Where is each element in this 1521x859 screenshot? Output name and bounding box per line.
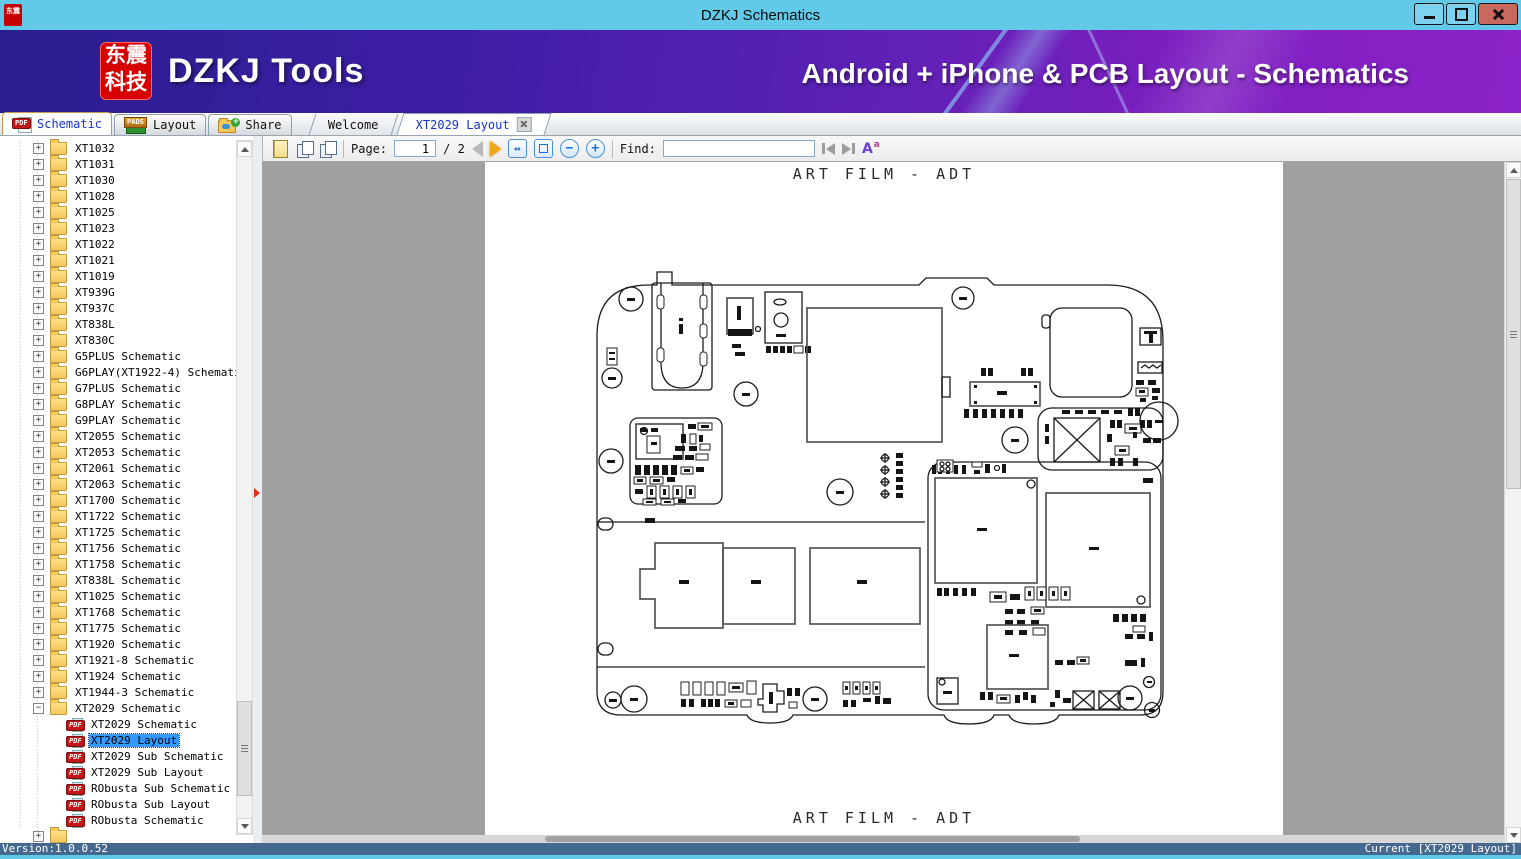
expander-icon[interactable] (33, 159, 44, 170)
page-total: / 2 (443, 142, 465, 156)
tree-item-folder[interactable]: G6PLAY(XT1922-4) Schematic (0, 364, 236, 380)
pdf-page: ART FILM - ADT ART FILM - ADT (485, 162, 1283, 835)
folder-icon (50, 334, 67, 347)
tab-layout-label: Layout (153, 118, 196, 132)
tree-item-folder[interactable]: XT1025 Schematic (0, 588, 236, 604)
pcb-drawing (485, 162, 1283, 835)
folder-icon (50, 542, 67, 555)
tree-item-pdf[interactable]: PDFXT2029 Sub Layout (0, 764, 236, 780)
folder-icon (50, 702, 67, 715)
expander-icon[interactable] (33, 511, 44, 522)
expander-icon[interactable] (33, 671, 44, 682)
tree-item-pdf[interactable]: PDFRObusta Sub Schematic (0, 780, 236, 796)
expander-icon[interactable] (33, 415, 44, 426)
sim-connector (607, 283, 712, 390)
logo-line1: 东震 (100, 42, 152, 69)
tree-item-folder[interactable]: XT1924 Schematic (0, 668, 236, 684)
tree-item-pdf-selected[interactable]: PDFXT2029 Layout (0, 732, 236, 748)
expander-icon[interactable] (33, 463, 44, 474)
close-button[interactable] (1478, 3, 1518, 25)
folder-icon (50, 830, 67, 843)
tree-item-folder[interactable]: XT1019 (0, 268, 236, 284)
folder-icon (50, 382, 67, 395)
find-previous-button[interactable] (822, 143, 835, 155)
folder-icon (50, 462, 67, 475)
folder-icon (50, 686, 67, 699)
tree-item-folder[interactable]: XT1032 (0, 140, 236, 156)
folder-icon (50, 158, 67, 171)
pdf-icon: PDF (66, 814, 83, 827)
window-title: DZKJ Schematics (0, 0, 1521, 30)
app-window: 东震 DZKJ Schematics 东震 科技 DZKJ Tools Andr… (0, 0, 1521, 859)
close-icon (1492, 8, 1504, 20)
expander-icon[interactable] (33, 239, 44, 250)
folder-icon (50, 238, 67, 251)
horizontal-scrollbar[interactable] (262, 835, 1504, 843)
folder-icon (50, 142, 67, 155)
tree-item-folder[interactable]: XT2061 Schematic (0, 460, 236, 476)
expander-icon[interactable] (33, 543, 44, 554)
tree-item-folder-partial[interactable] (0, 828, 236, 843)
tree-item-folder[interactable]: XT1944-3 Schematic (0, 684, 236, 700)
window-controls (1414, 3, 1518, 25)
bottom-connector-row (681, 681, 891, 712)
expander-icon[interactable] (33, 639, 44, 650)
collapse-icon[interactable] (33, 703, 44, 714)
expander-icon[interactable] (33, 223, 44, 234)
tree-item-pdf[interactable]: PDFRObusta Sub Layout (0, 796, 236, 812)
expander-icon[interactable] (33, 287, 44, 298)
camera-cross-region (1045, 408, 1161, 466)
expander-icon[interactable] (33, 143, 44, 154)
tree-item-folder[interactable]: XT1030 (0, 172, 236, 188)
page-number-input[interactable] (394, 140, 436, 157)
separator (343, 140, 344, 158)
banner: 东震 科技 DZKJ Tools Android + iPhone & PCB … (0, 30, 1521, 113)
camera-socket (1042, 308, 1132, 397)
grip-icon (1510, 331, 1517, 338)
banner-tagline: Android + iPhone & PCB Layout - Schemati… (801, 58, 1409, 90)
tree-item-folder[interactable]: XT838L (0, 316, 236, 332)
folder-icon (50, 670, 67, 683)
tree-item-folder[interactable]: XT1021 (0, 252, 236, 268)
audio-module (630, 418, 722, 505)
page-title-top: ART FILM - ADT (485, 165, 1283, 183)
expander-icon[interactable] (33, 175, 44, 186)
expander-icon[interactable] (33, 319, 44, 330)
pdf-icon: PDF (66, 718, 83, 731)
page-label: Page: (351, 142, 387, 156)
zoom-out-button[interactable]: − (560, 139, 579, 158)
tree-item-folder[interactable]: XT830C (0, 332, 236, 348)
current-document-text: Current [XT2029 Layout] (1365, 843, 1517, 855)
scroll-down-button[interactable] (237, 818, 252, 834)
folder-icon (50, 430, 67, 443)
scrollbar-thumb[interactable] (237, 701, 252, 796)
tree-item-folder[interactable]: G8PLAY Schematic (0, 396, 236, 412)
tab-layout[interactable]: PADS Layout (114, 114, 206, 135)
tree-item-pdf[interactable]: PDFRObusta Schematic (0, 812, 236, 828)
pdf-icon: PDF (66, 798, 83, 811)
expander-icon[interactable] (33, 527, 44, 538)
tree-item-folder[interactable]: XT937C (0, 300, 236, 316)
expander-icon[interactable] (33, 351, 44, 362)
folder-icon (50, 206, 67, 219)
match-case-icon[interactable] (862, 142, 873, 156)
minimize-icon (1424, 16, 1435, 19)
arrow-down-icon (241, 824, 249, 829)
folder-icon (50, 270, 67, 283)
tree-item-folder[interactable]: XT1758 Schematic (0, 556, 236, 572)
version-text: Version:1.0.0.52 (2, 843, 108, 855)
folder-icon (50, 494, 67, 507)
folder-icon (50, 302, 67, 315)
tree-item-folder[interactable]: XT2055 Schematic (0, 428, 236, 444)
fit-page-button[interactable] (534, 139, 553, 158)
receiver (756, 292, 812, 353)
tree-item-pdf[interactable]: PDFXT2029 Sub Schematic (0, 748, 236, 764)
next-page-button[interactable] (490, 141, 501, 157)
rotate-left-icon[interactable] (297, 141, 313, 157)
expander-icon[interactable] (33, 575, 44, 586)
share-icon: + (218, 118, 240, 133)
pdf-icon: PDF (12, 116, 32, 132)
folder-icon (50, 638, 67, 651)
battery-connector (727, 298, 753, 356)
pads-icon: PADS (124, 117, 148, 134)
expander-icon[interactable] (33, 367, 44, 378)
expander-icon[interactable] (33, 255, 44, 266)
tab-schematic-label: Schematic (37, 117, 102, 131)
scrollbar-thumb[interactable] (1506, 179, 1521, 489)
previous-page-button[interactable] (472, 141, 483, 157)
folder-icon (50, 574, 67, 587)
folder-icon (50, 190, 67, 203)
lower-left-section (640, 518, 920, 628)
tree-item-folder-expanded[interactable]: XT2029 Schematic (0, 700, 236, 716)
find-next-button[interactable] (842, 143, 855, 155)
tree-item-folder[interactable]: XT1025 (0, 204, 236, 220)
tab-xt2029-label: XT2029 Layout (416, 118, 510, 132)
tree-item-folder[interactable]: XT1022 (0, 236, 236, 252)
expander-icon[interactable] (33, 271, 44, 282)
expander-icon[interactable] (33, 447, 44, 458)
expander-icon[interactable] (33, 335, 44, 346)
expander-icon[interactable] (33, 495, 44, 506)
expander-icon[interactable] (33, 431, 44, 442)
arrow-up-icon (241, 147, 249, 152)
expander-icon[interactable] (33, 831, 44, 842)
tree-item-folder[interactable]: XT1700 Schematic (0, 492, 236, 508)
tree-item-folder[interactable]: XT1920 Schematic (0, 636, 236, 652)
tree-item-folder[interactable]: G5PLUS Schematic (0, 348, 236, 364)
expander-icon[interactable] (33, 399, 44, 410)
minimize-button[interactable] (1414, 3, 1444, 25)
arrow-down-icon (1510, 833, 1518, 838)
folder-icon (50, 366, 67, 379)
folder-icon (50, 606, 67, 619)
pdf-icon: PDF (66, 766, 83, 779)
antenna-pads (880, 453, 903, 499)
tab-share-label: Share (245, 118, 281, 132)
pdf-toolbar: Page: / 2 ↔ − + Find: (262, 136, 1521, 162)
tab-welcome[interactable]: Welcome (308, 114, 397, 135)
arrow-up-icon (1510, 168, 1518, 173)
pdf-icon: PDF (66, 750, 83, 763)
folder-icon (50, 398, 67, 411)
text-select-icon[interactable] (273, 140, 288, 158)
pdf-icon: PDF (66, 782, 83, 795)
folder-icon (50, 222, 67, 235)
find-label: Find: (620, 142, 656, 156)
expander-icon[interactable] (33, 191, 44, 202)
expander-icon[interactable] (33, 207, 44, 218)
titlebar: 东震 DZKJ Schematics (0, 0, 1521, 30)
logo-line2: 科技 (100, 69, 152, 96)
folder-icon (50, 526, 67, 539)
tree-item-folder[interactable]: XT1725 Schematic (0, 524, 236, 540)
folder-icon (50, 446, 67, 459)
tab-share[interactable]: + Share (208, 114, 291, 135)
sidebar: XT1032 XT1031 XT1030 XT1028 XT1025 XT102… (0, 136, 262, 843)
scroll-up-button[interactable] (1506, 162, 1521, 178)
rotate-right-icon[interactable] (320, 141, 336, 157)
folder-icon (50, 318, 67, 331)
tree-item-folder[interactable]: XT1028 (0, 188, 236, 204)
zoom-in-button[interactable]: + (586, 139, 605, 158)
status-bar: Version:1.0.0.52 Current [XT2029 Layout] (0, 843, 1521, 855)
brand-logo: 东震 科技 (100, 42, 152, 100)
tree-item-folder[interactable]: G7PLUS Schematic (0, 380, 236, 396)
tab-schematic[interactable]: PDF Schematic (2, 112, 112, 135)
right-edge-parts (1136, 328, 1162, 402)
expander-icon[interactable] (33, 607, 44, 618)
scroll-up-button[interactable] (237, 141, 252, 157)
scrollbar-thumb[interactable] (545, 836, 1080, 842)
tab-welcome-label: Welcome (328, 118, 379, 132)
fit-page-icon (539, 144, 548, 153)
tree-item-folder[interactable]: XT939G (0, 284, 236, 300)
expander-icon[interactable] (33, 383, 44, 394)
sub-board (932, 460, 1153, 709)
grip-icon (241, 745, 248, 752)
expander-icon[interactable] (33, 591, 44, 602)
folder-icon (50, 654, 67, 667)
product-name: DZKJ Tools (168, 52, 364, 91)
separator (612, 140, 613, 158)
tab-bar: PDF Schematic PADS Layout + Share Welcom… (0, 113, 1521, 136)
tree-item-folder[interactable]: XT1921-8 Schematic (0, 652, 236, 668)
pdf-icon: PDF (66, 734, 83, 747)
tree-item-folder[interactable]: XT1756 Schematic (0, 540, 236, 556)
tree-item-folder[interactable]: XT1722 Schematic (0, 508, 236, 524)
expander-icon[interactable] (33, 655, 44, 666)
tree-item-folder[interactable]: XT2053 Schematic (0, 444, 236, 460)
fit-width-button[interactable]: ↔ (508, 139, 527, 158)
folder-icon (50, 286, 67, 299)
schematic-tree: XT1032 XT1031 XT1030 XT1028 XT1025 XT102… (0, 140, 236, 843)
sidebar-splitter[interactable] (253, 136, 262, 843)
folder-icon (50, 510, 67, 523)
scroll-down-button[interactable] (1506, 827, 1521, 843)
expander-icon[interactable] (33, 623, 44, 634)
expander-icon[interactable] (33, 303, 44, 314)
folder-icon (50, 174, 67, 187)
find-input[interactable] (663, 140, 815, 157)
document-tabs: Welcome XT2029 Layout (306, 112, 549, 135)
mid-shield (964, 368, 1040, 418)
maximize-icon (1455, 8, 1468, 21)
folder-icon (50, 350, 67, 363)
collapse-sidebar-icon[interactable] (254, 488, 260, 498)
tree-scrollbar[interactable] (236, 140, 253, 835)
vertical-scrollbar[interactable] (1504, 162, 1521, 843)
folder-icon (50, 558, 67, 571)
tree-item-folder[interactable]: XT1031 (0, 156, 236, 172)
page-title-bottom: ART FILM - ADT (485, 809, 1283, 827)
folder-icon (50, 622, 67, 635)
tree-item-folder[interactable]: XT1768 Schematic (0, 604, 236, 620)
maximize-button[interactable] (1446, 3, 1476, 25)
tab-xt2029-layout[interactable]: XT2029 Layout (397, 113, 552, 135)
close-tab-icon[interactable] (517, 117, 532, 132)
top-shield (807, 308, 950, 442)
expander-icon[interactable] (33, 479, 44, 490)
tree-item-folder[interactable]: XT1775 Schematic (0, 620, 236, 636)
tree-item-folder[interactable]: XT838L Schematic (0, 572, 236, 588)
folder-icon (50, 254, 67, 267)
tree-item-folder[interactable]: XT1023 (0, 220, 236, 236)
tree-item-pdf[interactable]: PDFXT2029 Schematic (0, 716, 236, 732)
expander-icon[interactable] (33, 687, 44, 698)
expander-icon[interactable] (33, 559, 44, 570)
status-bottom-strip (0, 855, 1521, 859)
tree-item-folder[interactable]: XT2063 Schematic (0, 476, 236, 492)
pdf-view: ART FILM - ADT ART FILM - ADT (262, 162, 1521, 843)
folder-icon (50, 414, 67, 427)
folder-icon (50, 590, 67, 603)
tree-item-folder[interactable]: G9PLAY Schematic (0, 412, 236, 428)
folder-icon (50, 478, 67, 491)
